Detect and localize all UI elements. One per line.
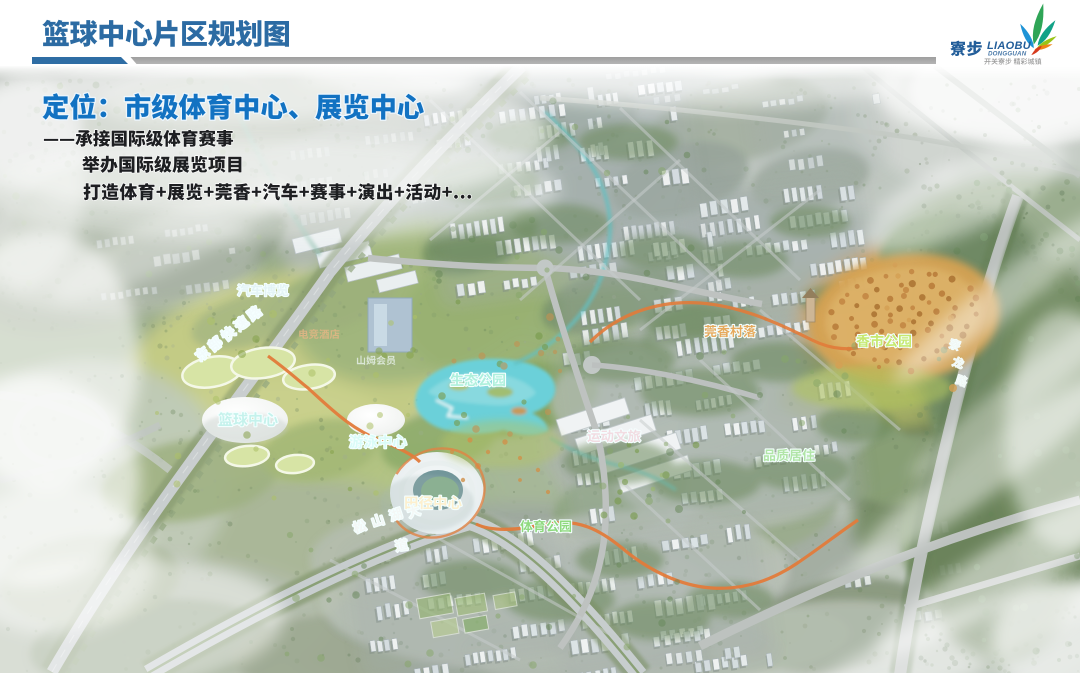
svg-text:DONGGUAN: DONGGUAN <box>988 51 1027 58</box>
